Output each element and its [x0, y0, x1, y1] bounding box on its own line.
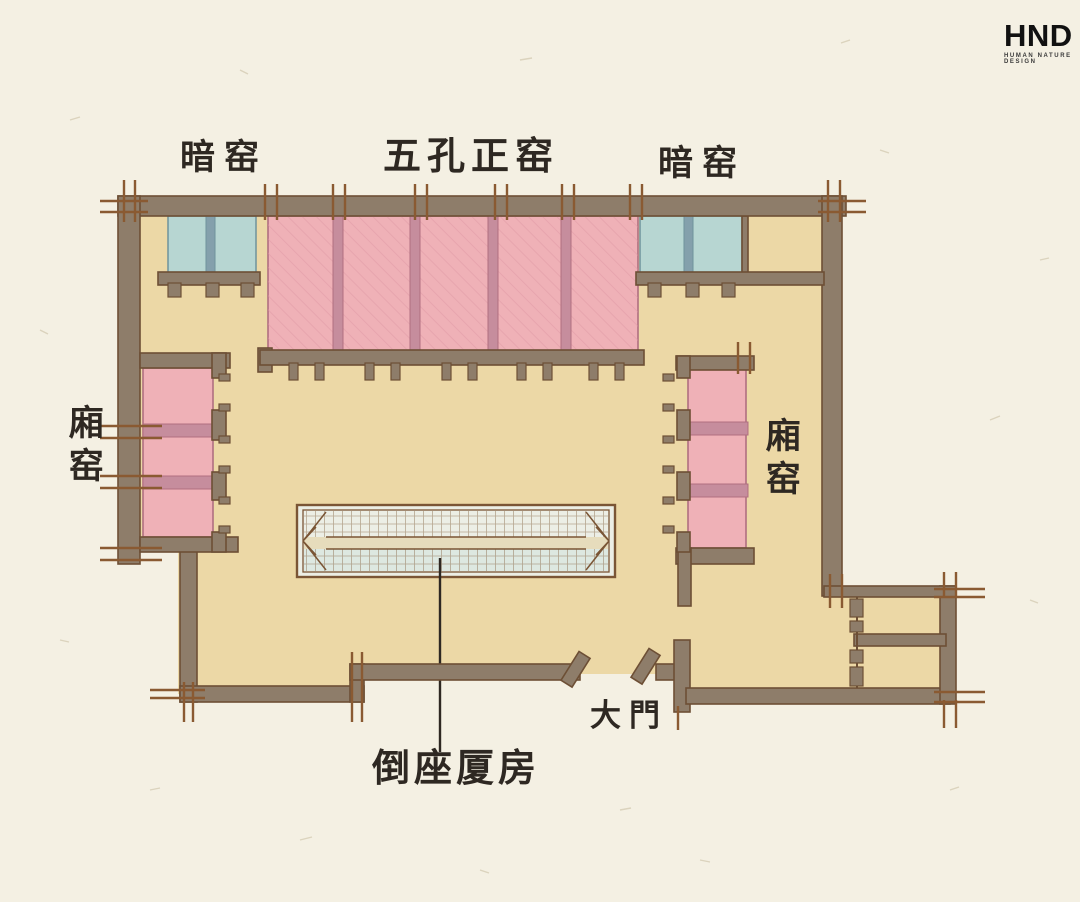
label-main-kiln: 五孔正窑: [383, 136, 559, 176]
label-dark-kiln-left: 暗窑: [180, 140, 268, 177]
hnd-logo-tagline: HUMAN NATURE DESIGN: [1004, 53, 1080, 65]
dark-kiln-right-room: [640, 216, 748, 274]
hnd-logo: HND HUMAN NATURE DESIGN: [1004, 20, 1080, 65]
hnd-logo-text: HND: [1004, 20, 1080, 51]
label-dark-kiln-right: 暗窑: [658, 146, 746, 183]
label-side-kiln-right: 廂窑: [761, 417, 798, 503]
side-kiln-right-rooms: [678, 368, 748, 548]
side-kiln-left-rooms: [143, 368, 226, 537]
annex-roof: [297, 505, 615, 577]
label-side-kiln-left: 廂窑: [64, 404, 101, 490]
floor-plan-page: 暗窑 五孔正窑 暗窑 廂窑 廂窑 大門 倒座厦房 HND HUMAN NATUR…: [0, 0, 1080, 902]
label-reversed-annex: 倒座厦房: [372, 748, 540, 788]
label-gate: 大門: [590, 700, 668, 733]
main-kiln-block: [268, 216, 638, 352]
dark-kiln-left-room: [168, 216, 256, 274]
